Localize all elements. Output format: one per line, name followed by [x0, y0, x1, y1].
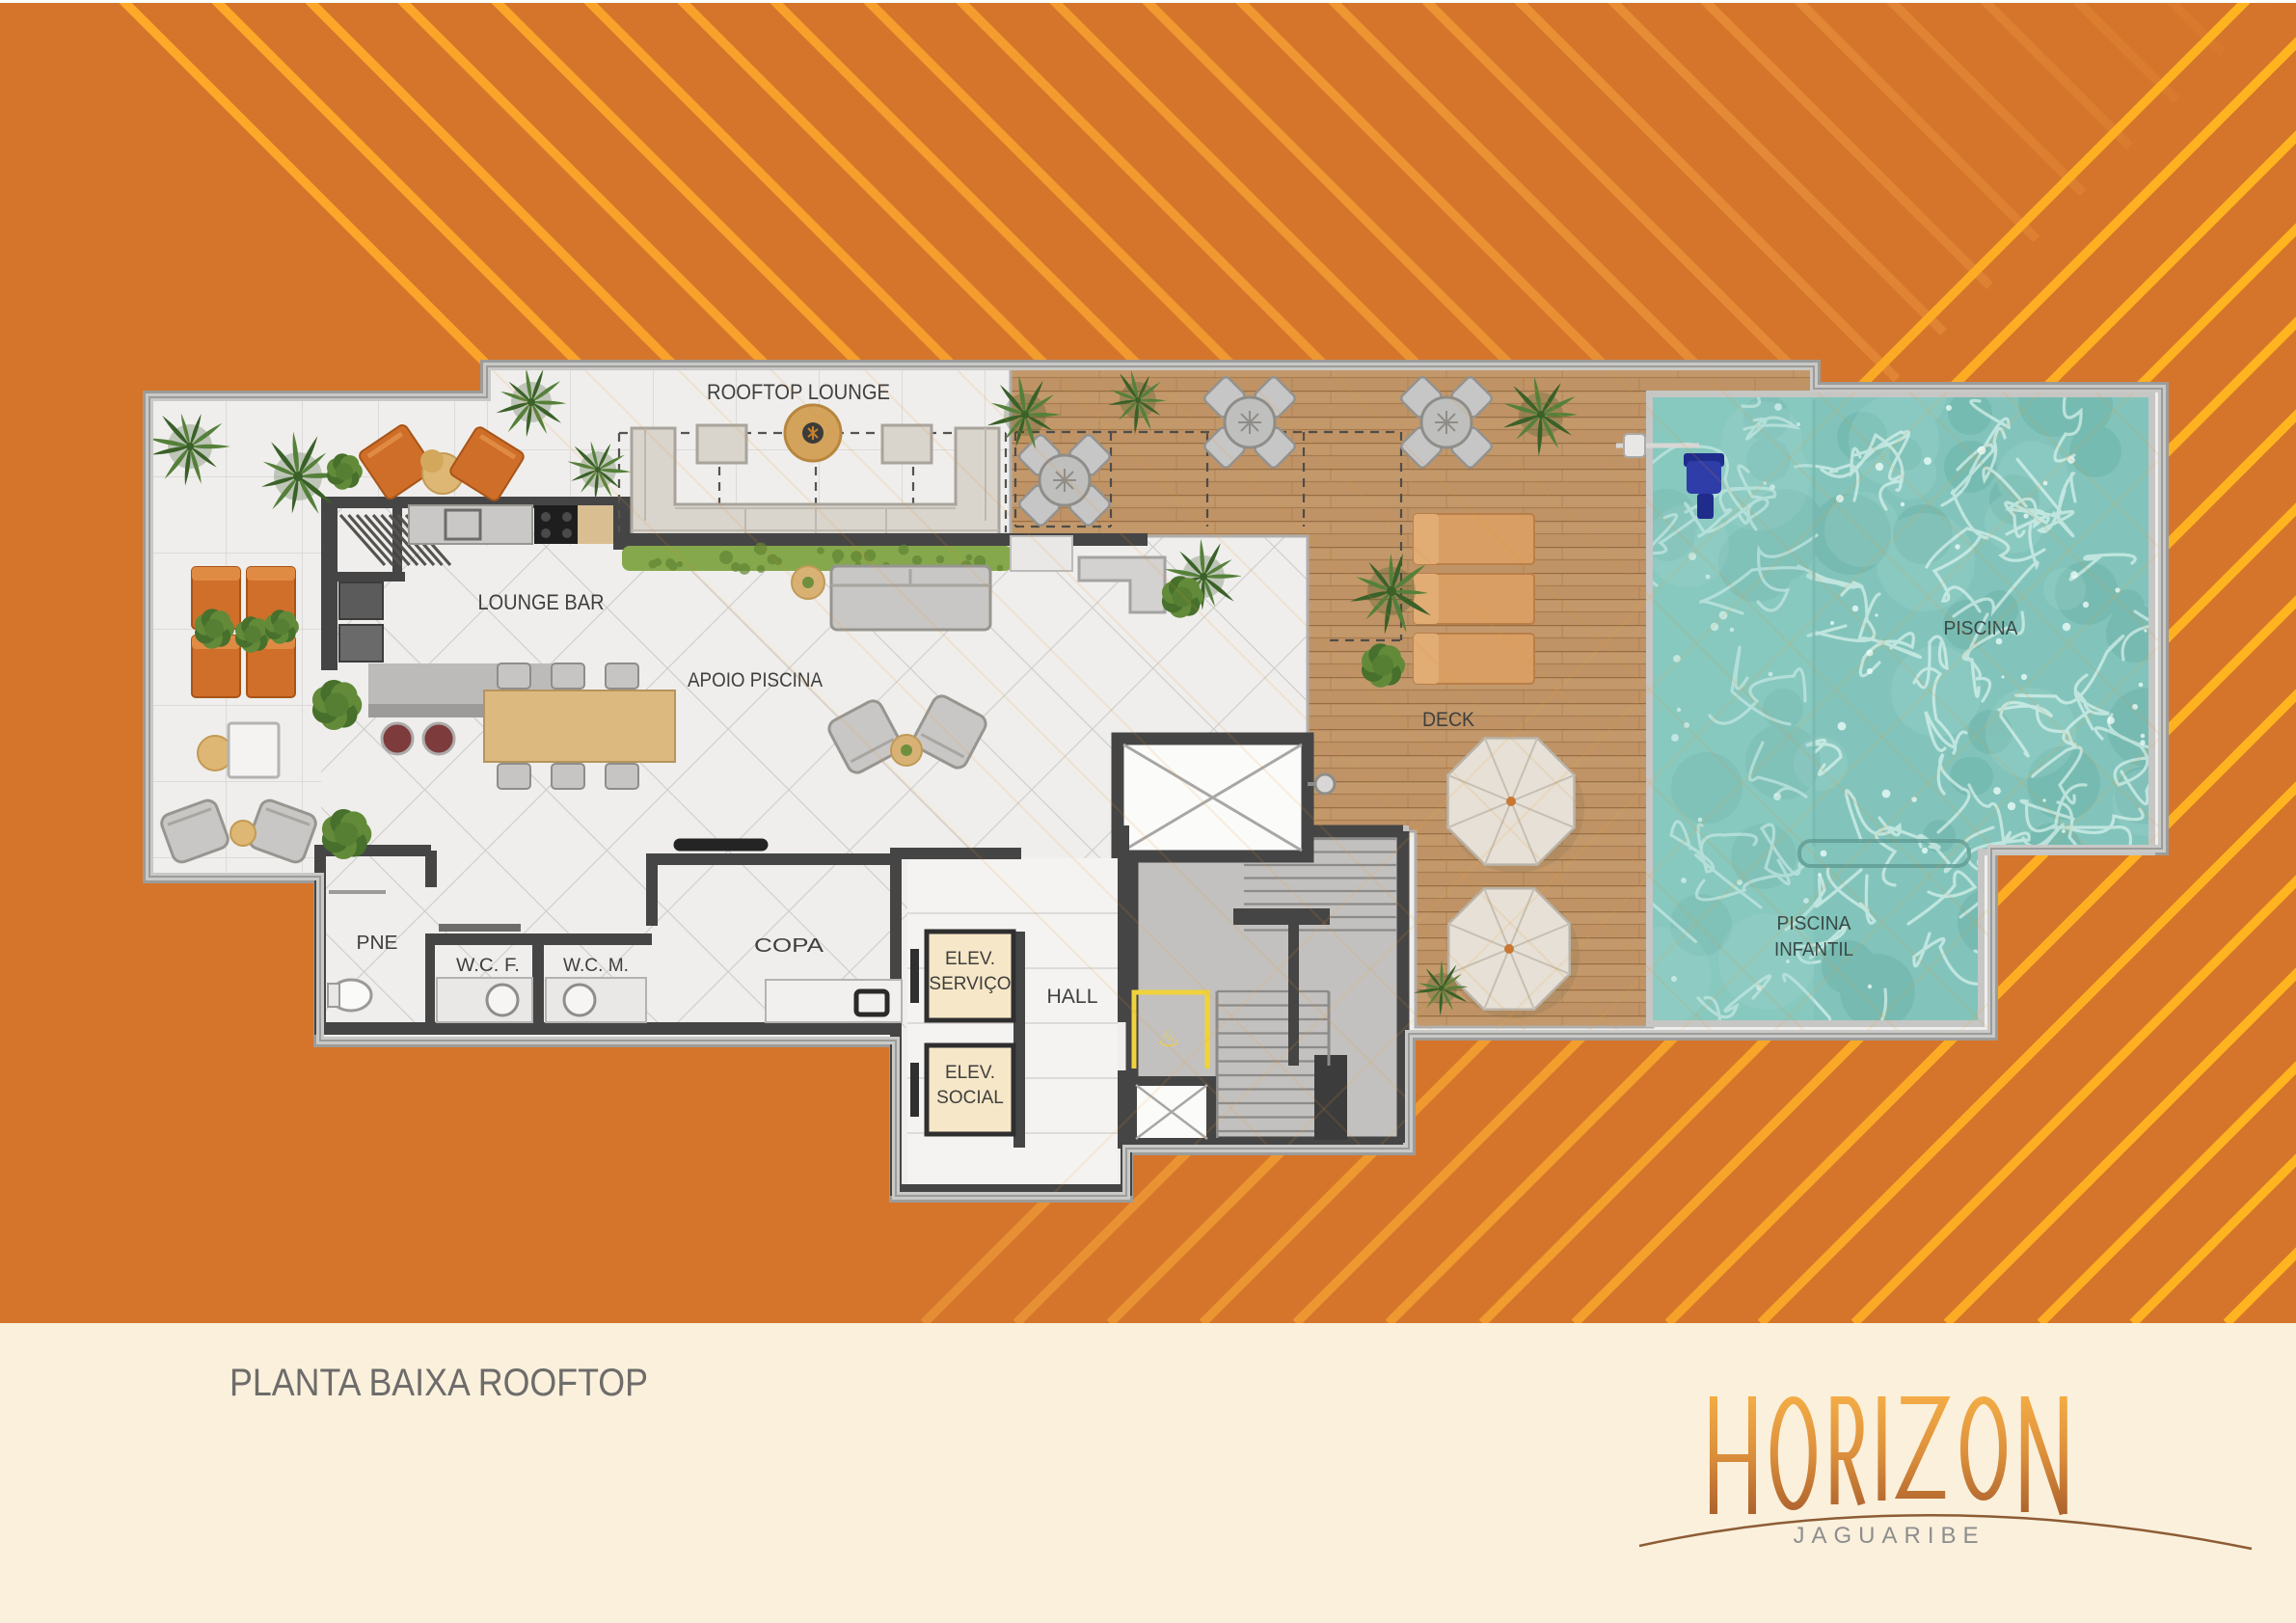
svg-text:SERVIÇO: SERVIÇO — [929, 974, 1011, 994]
svg-text:W.C. F.: W.C. F. — [456, 956, 520, 976]
svg-text:PLANTA BAIXA ROOFTOP: PLANTA BAIXA ROOFTOP — [230, 1362, 648, 1404]
svg-text:COPA: COPA — [754, 935, 824, 957]
svg-text:ELEV.: ELEV. — [945, 949, 995, 969]
svg-text:PNE: PNE — [357, 933, 398, 954]
svg-text:ELEV.: ELEV. — [945, 1063, 995, 1083]
svg-text:JAGUARIBE: JAGUARIBE — [1793, 1523, 1985, 1549]
svg-text:PISCINA: PISCINA — [1944, 618, 2019, 639]
svg-text:INFANTIL: INFANTIL — [1774, 939, 1853, 960]
svg-text:LOUNGE BAR: LOUNGE BAR — [478, 590, 605, 614]
svg-text:W.C. M.: W.C. M. — [563, 956, 629, 976]
svg-text:HALL: HALL — [1047, 986, 1098, 1008]
svg-text:ROOFTOP LOUNGE: ROOFTOP LOUNGE — [707, 380, 890, 404]
svg-text:DECK: DECK — [1422, 709, 1474, 731]
svg-text:SOCIAL: SOCIAL — [936, 1088, 1004, 1108]
